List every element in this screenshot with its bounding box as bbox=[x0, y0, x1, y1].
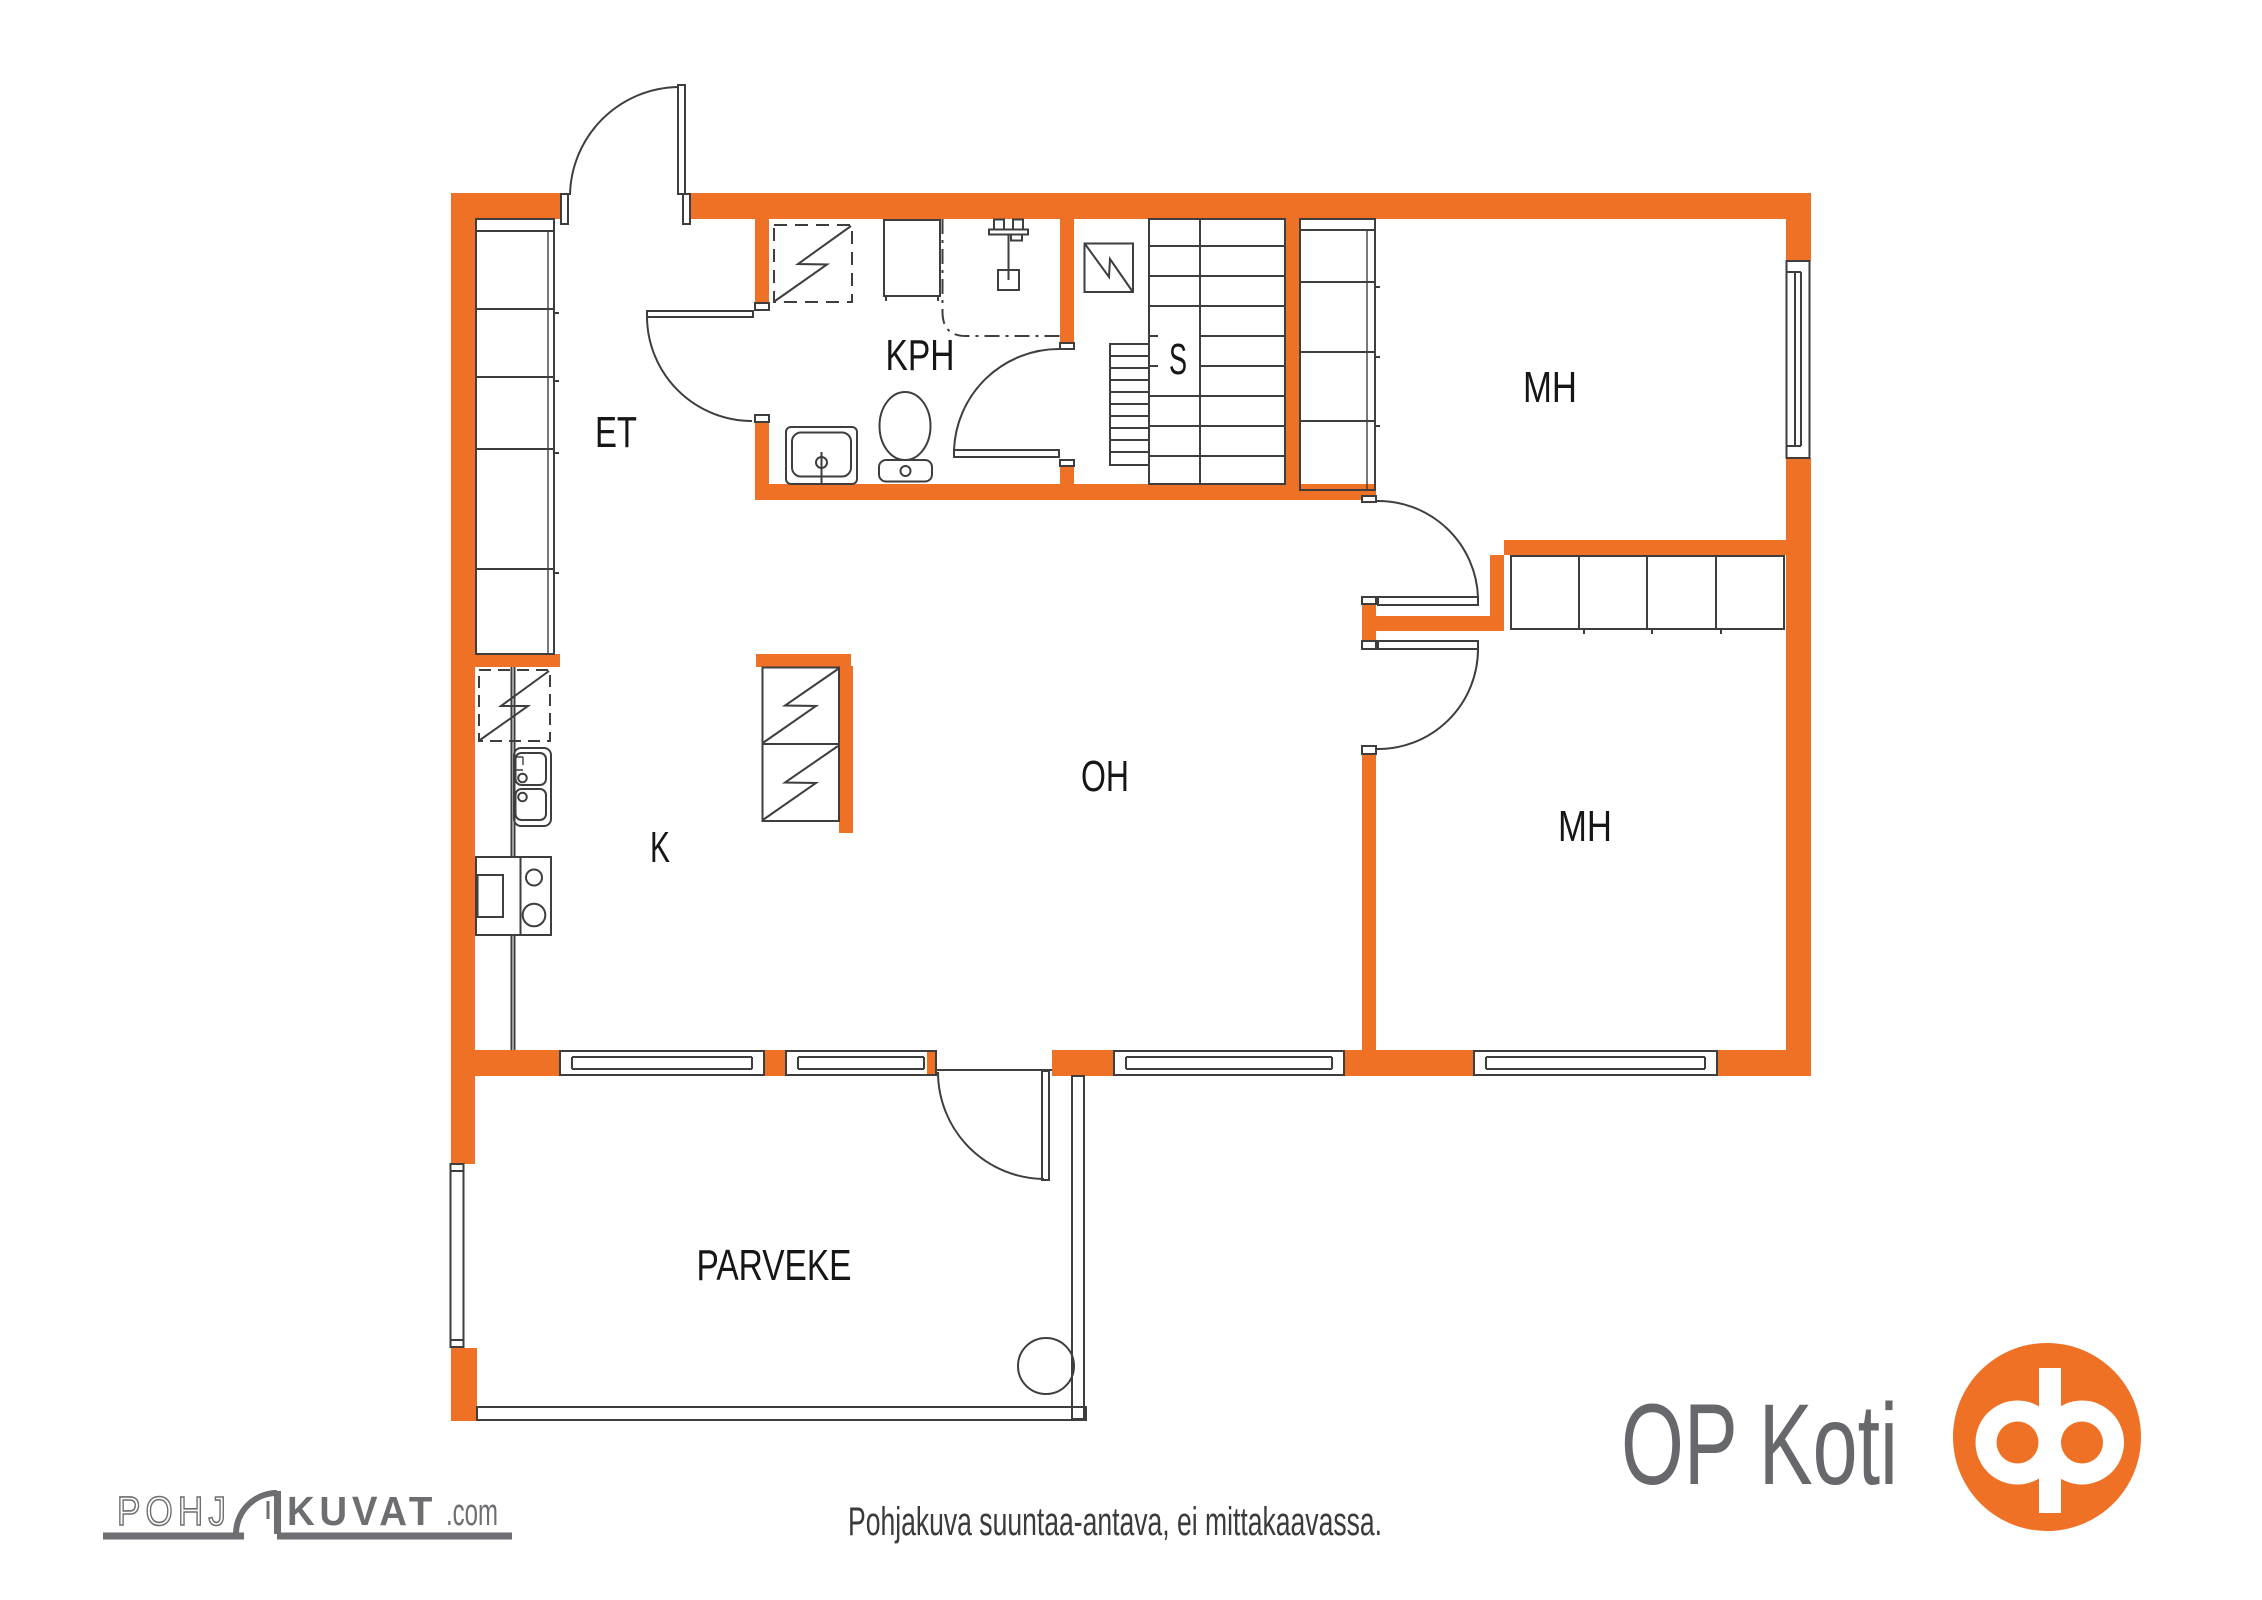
svg-text:S: S bbox=[1169, 335, 1187, 384]
svg-text:KPH: KPH bbox=[886, 331, 955, 380]
svg-text:MH: MH bbox=[1523, 363, 1577, 412]
svg-text:ET: ET bbox=[595, 408, 637, 457]
svg-text:OP Koti: OP Koti bbox=[1621, 1381, 1898, 1509]
svg-text:PARVEKE: PARVEKE bbox=[697, 1241, 852, 1290]
svg-text:MH: MH bbox=[1558, 802, 1612, 851]
svg-text:K: K bbox=[650, 823, 670, 872]
svg-text:KUVAT: KUVAT bbox=[287, 1488, 437, 1534]
svg-text:Pohjakuva suuntaa-antava, ei m: Pohjakuva suuntaa-antava, ei mittakaavas… bbox=[848, 1500, 1382, 1544]
svg-text:.com: .com bbox=[446, 1492, 498, 1534]
svg-text:OH: OH bbox=[1081, 752, 1129, 801]
svg-text:POHJ: POHJ bbox=[117, 1488, 231, 1534]
